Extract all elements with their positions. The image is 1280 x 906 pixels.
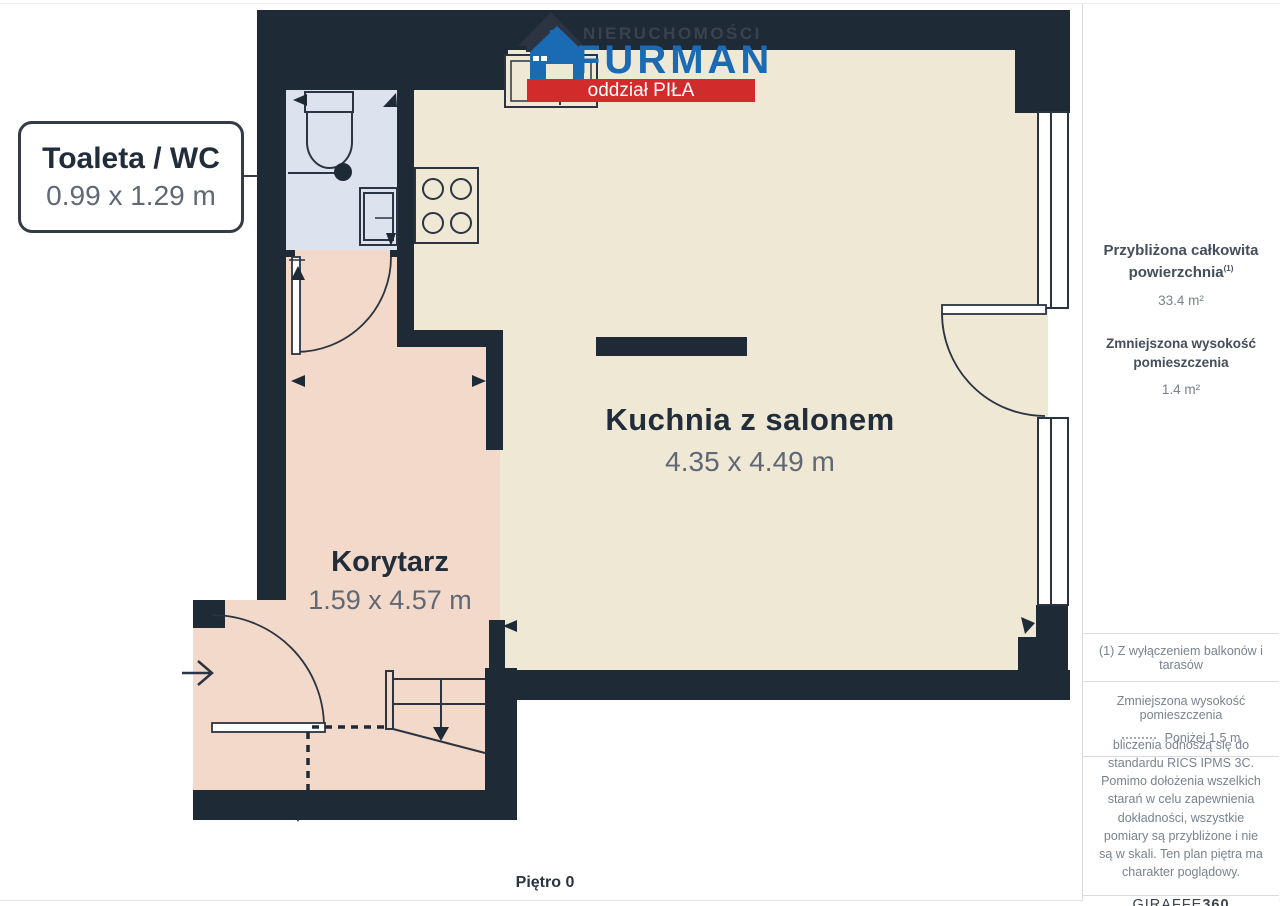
right-window-bottom <box>1038 418 1068 605</box>
brand-number: 360 <box>1202 897 1229 906</box>
right-window-top <box>1038 112 1068 308</box>
corridor-label: Korytarz 1.59 x 4.57 m <box>255 546 525 616</box>
area-summary-section: Przybliżona całkowita powierzchnia(1) 33… <box>1083 4 1279 634</box>
toilet-room-name: Toaleta / WC <box>42 142 220 176</box>
floorplan-page: NIERUCHOMOŚCI FURMAN oddział PIŁA Toalet… <box>0 0 1280 906</box>
kitchen-room-dims: 4.35 x 4.49 m <box>560 446 940 478</box>
disclaimer-section: bliczenia odnoszą się do standardu RICS … <box>1083 757 1279 896</box>
total-area-title-line1: Przybliżona całkowita <box>1103 242 1258 259</box>
kitchen-counter <box>596 337 747 356</box>
info-sidebar: Przybliżona całkowita powierzchnia(1) 33… <box>1082 4 1279 901</box>
kitchen-label: Kuchnia z salonem 4.35 x 4.49 m <box>560 402 940 478</box>
kitchen-room-name: Kuchnia z salonem <box>560 402 940 438</box>
footnote-ref-sup: (1) <box>1224 264 1234 273</box>
legend-title: Zmniejszona wysokość pomieszczenia <box>1097 694 1265 722</box>
reduced-height-title: Zmniejszona wysokość pomieszczenia <box>1097 334 1265 373</box>
total-area-value: 33.4 m² <box>1158 293 1204 308</box>
total-area-title-line2: powierzchnia <box>1129 264 1224 281</box>
logo-branch-banner: oddział PIŁA <box>527 79 755 102</box>
brand-name: GIRAFFE <box>1132 897 1202 906</box>
disclaimer-text: bliczenia odnoszą się do standardu RICS … <box>1097 736 1265 881</box>
footnote-text: (1) Z wyłączeniem balkonów i tarasów <box>1097 644 1265 672</box>
reduced-height-value: 1.4 m² <box>1162 382 1200 397</box>
logo-furman-text: FURMAN <box>576 38 776 83</box>
floor-level-label: Piętro 0 <box>420 874 670 892</box>
corridor-room-dims: 1.59 x 4.57 m <box>255 585 525 616</box>
stove <box>415 168 478 243</box>
logo-branch-label: oddział PIŁA <box>588 80 695 102</box>
toilet-label-callout: Toaleta / WC 0.99 x 1.29 m <box>18 121 244 233</box>
toilet-room-dims: 0.99 x 1.29 m <box>46 180 216 212</box>
total-area-title: Przybliżona całkowita powierzchnia(1) <box>1103 240 1258 284</box>
corridor-room-name: Korytarz <box>255 546 525 579</box>
giraffe360-brand: GIRAFFE360 <box>1132 895 1229 906</box>
footnote-section: (1) Z wyłączeniem balkonów i tarasów <box>1083 634 1279 682</box>
